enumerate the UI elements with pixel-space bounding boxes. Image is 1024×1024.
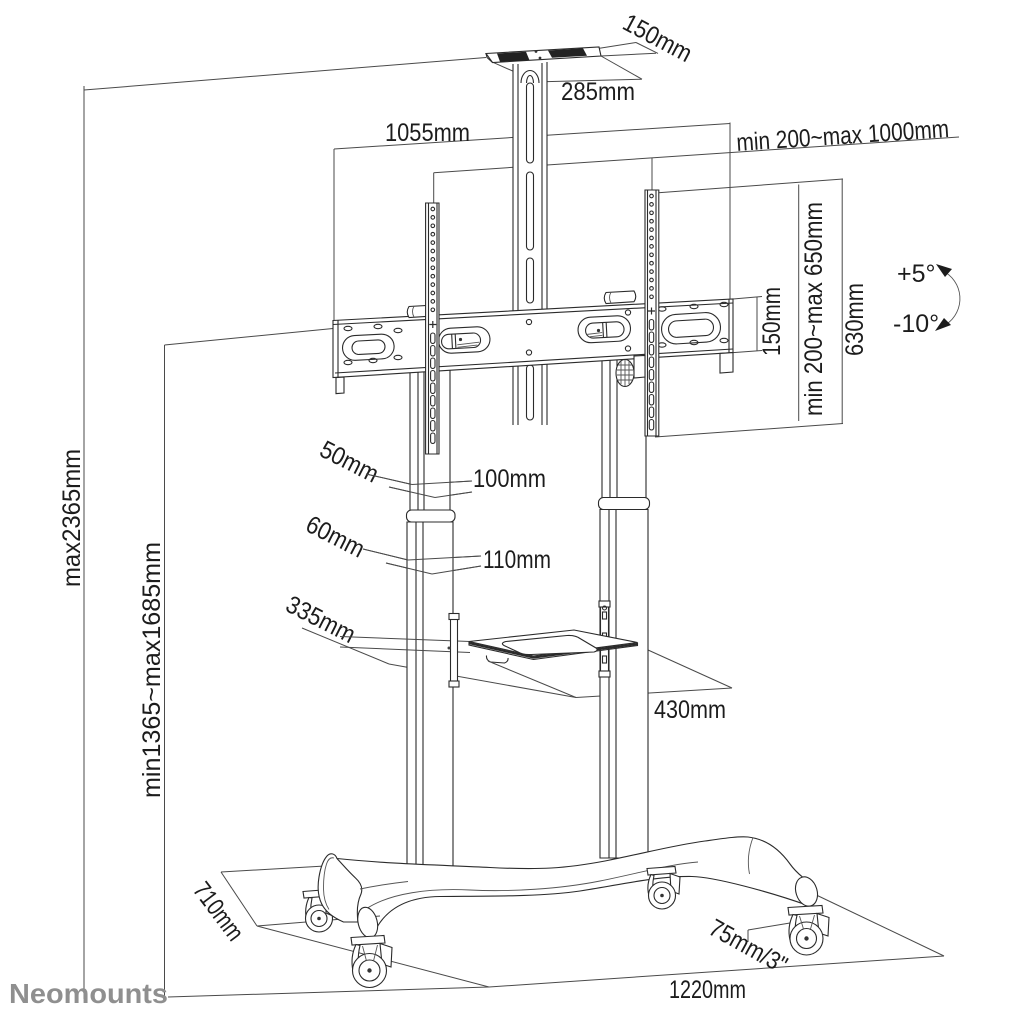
svg-text:430mm: 430mm — [654, 696, 726, 724]
svg-text:Neomounts: Neomounts — [9, 978, 168, 1009]
svg-text:150mm: 150mm — [758, 287, 786, 356]
svg-text:min1365~max1685mm: min1365~max1685mm — [138, 542, 166, 798]
svg-text:1220mm: 1220mm — [669, 976, 746, 1004]
svg-text:285mm: 285mm — [561, 78, 635, 106]
svg-text:110mm: 110mm — [483, 546, 551, 574]
svg-text:630mm: 630mm — [841, 283, 869, 356]
svg-text:-10°: -10° — [893, 310, 939, 338]
svg-text:+5°: +5° — [897, 260, 936, 288]
svg-text:100mm: 100mm — [473, 465, 546, 493]
svg-text:max2365mm: max2365mm — [58, 449, 86, 587]
svg-text:min 200~max 650mm: min 200~max 650mm — [800, 202, 828, 416]
svg-text:1055mm: 1055mm — [385, 119, 470, 147]
